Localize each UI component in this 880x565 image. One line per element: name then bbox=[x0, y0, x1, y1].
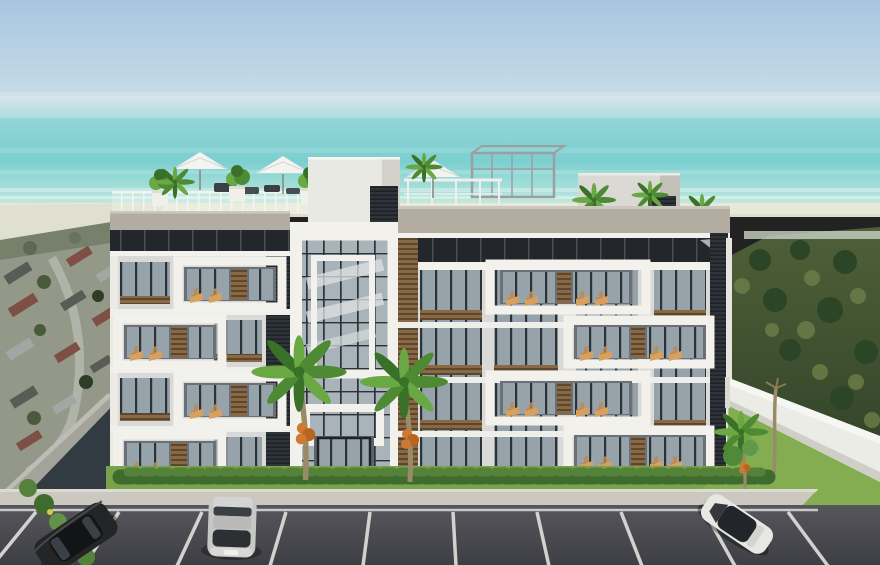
left-wing bbox=[110, 211, 290, 487]
right-wing bbox=[396, 206, 732, 488]
glass-railing bbox=[112, 192, 310, 214]
elevator-tower bbox=[308, 157, 400, 226]
distant-shore bbox=[744, 231, 880, 239]
hedge bbox=[120, 472, 768, 477]
render-canvas: Aerial 3D rendering of a modern white be… bbox=[0, 0, 880, 565]
horizon-haze bbox=[0, 92, 880, 118]
car-silver bbox=[201, 496, 263, 561]
clerestory-band bbox=[110, 230, 290, 251]
architectural-render: Aerial 3D rendering of a modern white be… bbox=[0, 0, 880, 565]
apartment-building bbox=[110, 206, 732, 488]
clerestory-band bbox=[398, 238, 730, 262]
